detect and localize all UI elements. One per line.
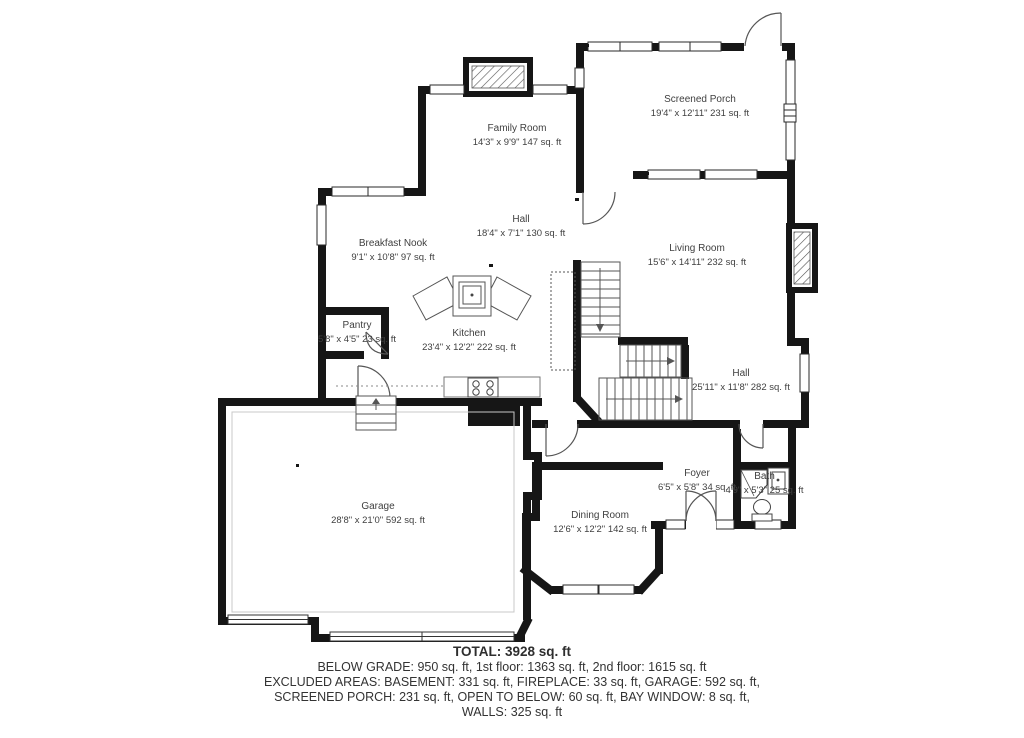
floorplan-page: Family Room 14'3" x 9'9" 147 sq. ft Scre… bbox=[0, 0, 1024, 738]
room-label-dining-room: Dining Room 12'6" x 12'2" 142 sq. ft bbox=[515, 508, 685, 537]
fireplace-family-icon bbox=[466, 60, 530, 94]
open-to-below-outline bbox=[551, 272, 575, 370]
garage-door-icon bbox=[228, 615, 514, 641]
room-label-bath: Bath 4'9" x 5'3" 25 sq. ft bbox=[722, 469, 807, 498]
area-summary: TOTAL: 3928 sq. ft BELOW GRADE: 950 sq. … bbox=[0, 644, 1024, 720]
summary-line-walls: WALLS: 325 sq. ft bbox=[0, 705, 1024, 720]
floorplan-drawing bbox=[0, 0, 1024, 738]
fireplace-living-icon bbox=[789, 226, 815, 290]
summary-line-excluded-2: SCREENED PORCH: 231 sq. ft, OPEN TO BELO… bbox=[0, 690, 1024, 705]
kitchen-counter-icon bbox=[336, 377, 540, 397]
room-label-family-room: Family Room 14'3" x 9'9" 147 sq. ft bbox=[427, 121, 607, 150]
summary-line-floors: BELOW GRADE: 950 sq. ft, 1st floor: 1363… bbox=[0, 660, 1024, 675]
room-label-screened-porch: Screened Porch 19'4" x 12'11" 231 sq. ft bbox=[600, 92, 800, 121]
room-label-garage: Garage 28'8" x 21'0" 592 sq. ft bbox=[293, 499, 463, 528]
room-label-kitchen: Kitchen 23'4" x 12'2" 222 sq. ft bbox=[384, 326, 554, 355]
total-area-text: TOTAL: 3928 sq. ft bbox=[0, 644, 1024, 660]
toilet-icon bbox=[752, 500, 772, 522]
room-label-living-room: Living Room 15'6" x 14'11" 232 sq. ft bbox=[612, 241, 782, 270]
kitchen-island-icon bbox=[413, 276, 531, 320]
summary-line-excluded-1: EXCLUDED AREAS: BASEMENT: 331 sq. ft, FI… bbox=[0, 675, 1024, 690]
room-label-hall-lower: Hall 25'11" x 11'8" 282 sq. ft bbox=[656, 366, 826, 395]
room-label-breakfast-nook: Breakfast Nook 9'1" x 10'8" 97 sq. ft bbox=[308, 236, 478, 265]
entry-steps-icon bbox=[356, 396, 396, 430]
stove-icon bbox=[468, 378, 498, 397]
